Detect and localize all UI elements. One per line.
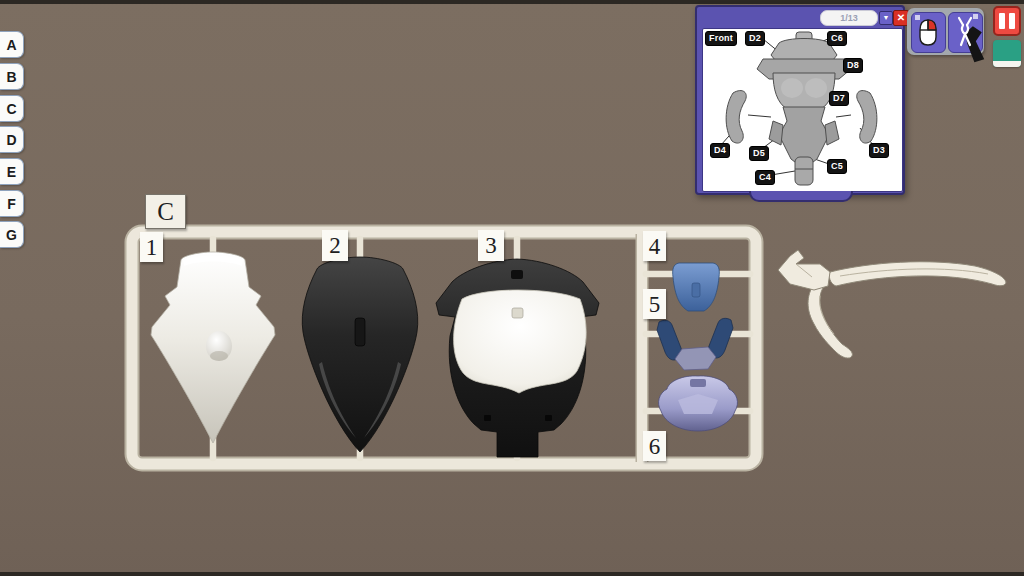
part-c5-v-armor[interactable] bbox=[657, 318, 733, 370]
slot-number-tag-3: 3 bbox=[478, 230, 504, 261]
slot-number-tag-6: 6 bbox=[643, 431, 666, 461]
slot-number-tag-4: 4 bbox=[643, 231, 666, 261]
part-c3-torso-shell[interactable] bbox=[436, 259, 599, 457]
workbench-scene: { "scene": { "background_color": "#77695… bbox=[0, 0, 1024, 576]
runner-tab-label: D bbox=[6, 132, 16, 148]
part-c1-back-armor[interactable] bbox=[151, 252, 275, 443]
runner-tab-b[interactable]: B bbox=[0, 63, 24, 90]
runner-tab-label: E bbox=[7, 164, 16, 180]
runner-letter: C bbox=[157, 199, 174, 224]
pause-button[interactable] bbox=[993, 6, 1021, 36]
pause-icon bbox=[1009, 13, 1015, 29]
manual-part-label-d4: D4 bbox=[710, 143, 730, 158]
runner-tab-label: F bbox=[7, 196, 16, 212]
slot-number: 1 bbox=[146, 236, 158, 259]
top-letterbox-bar bbox=[0, 0, 1024, 4]
manual-part-label-c4: C4 bbox=[755, 170, 775, 185]
runner-sprue bbox=[110, 180, 790, 480]
slot-number-tag-1: 1 bbox=[140, 232, 163, 262]
nippers-tool-button[interactable] bbox=[948, 12, 983, 53]
manual-part-label-c5: C5 bbox=[827, 159, 847, 174]
color-swatch-button[interactable] bbox=[993, 40, 1021, 67]
runner-tab-c[interactable]: C bbox=[0, 95, 24, 122]
mouse-icon bbox=[912, 13, 945, 52]
runner-letter-tag: C bbox=[145, 194, 186, 229]
part-c6-chest-plate[interactable] bbox=[659, 376, 738, 431]
manual-part-label-c6: C6 bbox=[827, 31, 847, 46]
manual-front-label: Front bbox=[705, 31, 737, 46]
runner-tab-label: C bbox=[6, 101, 16, 117]
runner-tab-e[interactable]: E bbox=[0, 158, 24, 185]
slot-number: 2 bbox=[329, 234, 341, 257]
runner-tab-label: A bbox=[6, 37, 16, 53]
mouse-hint-button[interactable] bbox=[911, 12, 946, 53]
bottom-letterbox-bar bbox=[0, 572, 1024, 576]
slot-number: 3 bbox=[485, 234, 497, 257]
part-c4-crotch-armor[interactable] bbox=[673, 263, 720, 311]
manual-part-label-d8: D8 bbox=[843, 58, 863, 73]
manual-part-label-d2: D2 bbox=[745, 31, 765, 46]
manual-diagram-area: Front D2 C6 D8 D7 D4 D5 D3 C5 C4 bbox=[702, 28, 903, 192]
runner-tab-d[interactable]: D bbox=[0, 126, 24, 153]
slot-number: 5 bbox=[649, 293, 661, 316]
slot-number: 4 bbox=[649, 235, 661, 258]
runner-tab-f[interactable]: F bbox=[0, 190, 24, 217]
manual-page-indicator: 1/13 bbox=[820, 10, 878, 26]
swatch-band bbox=[993, 61, 1021, 67]
manual-diagram bbox=[703, 29, 902, 191]
manual-page-text: 1/13 bbox=[840, 13, 858, 23]
runner-tab-a[interactable]: A bbox=[0, 31, 24, 58]
slot-number: 6 bbox=[649, 435, 661, 458]
manual-part-label-d5: D5 bbox=[749, 146, 769, 161]
runner-tab-label: G bbox=[6, 227, 17, 243]
manual-page-dropdown-button[interactable]: ▼ bbox=[879, 11, 893, 25]
manual-part-label-d7: D7 bbox=[829, 91, 849, 106]
nippers-tool[interactable] bbox=[770, 245, 1020, 375]
manual-part-label-d3: D3 bbox=[869, 143, 889, 158]
slot-number-tag-2: 2 bbox=[322, 230, 348, 261]
runner-tab-label: B bbox=[6, 69, 16, 85]
pause-icon bbox=[999, 13, 1005, 29]
manual-pull-tab[interactable] bbox=[749, 191, 853, 202]
manual-window: 1/13 ▼ ✕ bbox=[695, 5, 905, 195]
slot-number-tag-5: 5 bbox=[643, 289, 666, 319]
part-c2-inner-back[interactable] bbox=[302, 257, 418, 452]
runner-tab-g[interactable]: G bbox=[0, 221, 24, 248]
